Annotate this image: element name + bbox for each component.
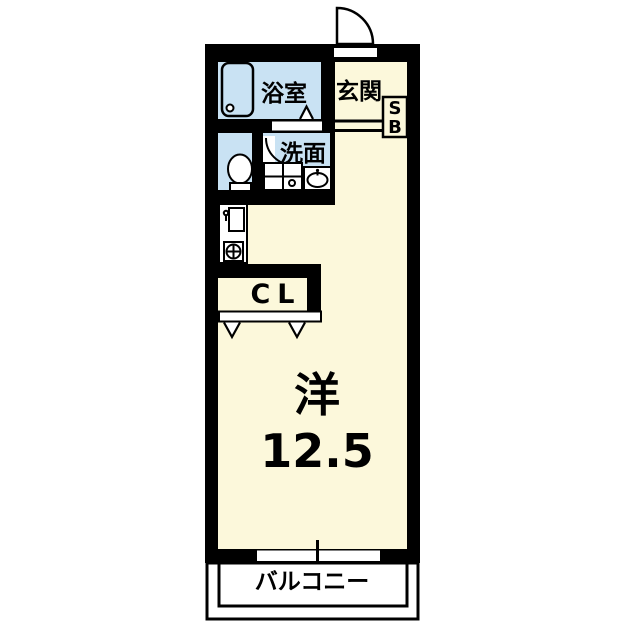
toilet-icon — [228, 155, 252, 192]
wash-basin-icon — [304, 167, 331, 190]
western-room-label: 洋 — [294, 368, 340, 422]
entrance-step-line-top — [335, 120, 383, 123]
bathtub-icon — [222, 63, 253, 116]
entrance-label: 玄関 — [336, 78, 382, 105]
wall-closet-top — [218, 264, 321, 278]
washing-machine-pan-icon — [264, 163, 302, 190]
shoe-box-label-b: B — [388, 117, 402, 138]
closet-door-track — [219, 312, 321, 322]
wall-toilet-right — [252, 133, 263, 190]
floor-plan-svg: バルコニー S B 浴室 玄関 洗面 CL 洋 12.5 — [0, 0, 640, 640]
bathroom-label: 浴室 — [261, 80, 307, 107]
closet-label: CL — [250, 279, 301, 310]
kitchenette — [219, 204, 247, 263]
stove-burner-icon — [224, 242, 243, 261]
shoe-box: S B — [383, 97, 407, 138]
wall-washroom-bottom — [218, 190, 335, 205]
floor-plan: バルコニー S B 浴室 玄関 洗面 CL 洋 12.5 — [0, 0, 640, 640]
entrance-threshold — [333, 47, 378, 58]
balcony-label: バルコニー — [255, 569, 370, 595]
western-room-size: 12.5 — [260, 424, 374, 478]
bathtub-drain — [227, 105, 234, 112]
bathroom-door-opening — [272, 122, 322, 131]
entrance-step-line-bottom — [335, 129, 383, 132]
balcony: バルコニー — [207, 563, 418, 619]
washroom-label: 洗面 — [280, 141, 326, 167]
wall-bathroom-entrance — [321, 62, 335, 119]
shoe-box-label-s: S — [389, 98, 402, 119]
